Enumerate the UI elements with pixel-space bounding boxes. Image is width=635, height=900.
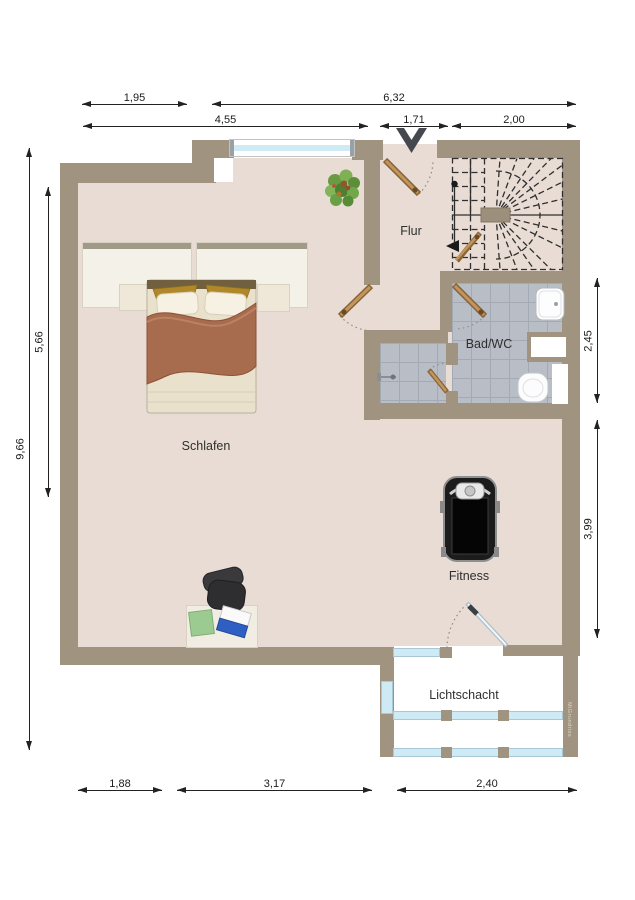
wall (441, 710, 452, 721)
dimension-top-5: 2,00 (452, 126, 576, 127)
bath-window (552, 364, 568, 404)
dimension-label: 2,45 (583, 330, 595, 351)
dimension-label: 9,66 (15, 438, 27, 459)
wall (441, 747, 452, 758)
floor-upper-strip (216, 158, 562, 184)
wardrobe (196, 242, 308, 308)
dimension-label: 3,99 (583, 518, 595, 539)
dimension-left-2: 5,66 (48, 187, 49, 497)
wall (364, 403, 580, 419)
lichtschacht-window (393, 748, 563, 757)
dimension-label: 6,32 (383, 92, 404, 104)
wall (364, 330, 448, 343)
room-label-flur: Flur (385, 224, 437, 238)
wall (498, 710, 509, 721)
wardrobe-top (83, 243, 191, 249)
dimension-left-1: 9,66 (29, 148, 30, 750)
wall (192, 140, 216, 183)
floor-plan: Flur Bad/WC Schlafen Fitness Lichtschach… (0, 0, 635, 900)
bedroom-window (229, 139, 355, 157)
room-label-bad: Bad/WC (459, 337, 519, 351)
dimension-label: 2,00 (503, 114, 524, 126)
dimension-label: 4,55 (215, 114, 236, 126)
wall (437, 140, 580, 158)
wall (364, 158, 380, 285)
wall (60, 163, 196, 183)
dimension-right-2: 3,99 (597, 420, 598, 638)
wall (503, 645, 563, 656)
wardrobe-top (197, 243, 307, 249)
watermark: MiGrundriss (566, 702, 572, 756)
wall (498, 747, 509, 758)
dimension-label: 1,95 (124, 92, 145, 104)
wall (440, 647, 452, 658)
dimension-label: 1,88 (109, 778, 130, 790)
window-glass (233, 145, 351, 151)
lichtschacht-side-window (381, 681, 393, 714)
entrance-threshold (383, 144, 437, 160)
wall (446, 343, 458, 365)
dimension-bottom-3: 2,40 (397, 790, 577, 791)
dimension-label: 2,40 (476, 778, 497, 790)
window-cap (230, 140, 234, 156)
nightstand (257, 284, 290, 312)
room-label-fitness: Fitness (434, 569, 504, 583)
wall (440, 271, 580, 283)
dimension-right-1: 2,45 (597, 278, 598, 403)
nightstand (119, 284, 148, 311)
wall (440, 283, 452, 332)
desk (186, 605, 258, 648)
room-label-schlafen: Schlafen (166, 439, 246, 453)
dimension-top-4: 1,71 (380, 126, 448, 127)
room-label-lichtschacht: Lichtschacht (414, 688, 514, 702)
wall (352, 140, 383, 160)
dimension-top-1: 1,95 (82, 104, 187, 105)
wall (60, 647, 394, 665)
wall (60, 163, 78, 665)
dimension-label: 5,66 (34, 331, 46, 352)
dimension-label: 3,17 (264, 778, 285, 790)
window-cap (350, 140, 354, 156)
dimension-top-2: 6,32 (212, 104, 576, 105)
shower-tiles (380, 343, 446, 404)
wall-niche (214, 158, 233, 182)
dimension-top-3: 4,55 (83, 126, 368, 127)
dimension-label: 1,71 (403, 114, 424, 126)
lichtschacht-window (393, 648, 440, 657)
dimension-bottom-2: 3,17 (177, 790, 372, 791)
bath-niche (531, 337, 566, 357)
lichtschacht-window (393, 711, 563, 720)
dimension-bottom-1: 1,88 (78, 790, 162, 791)
